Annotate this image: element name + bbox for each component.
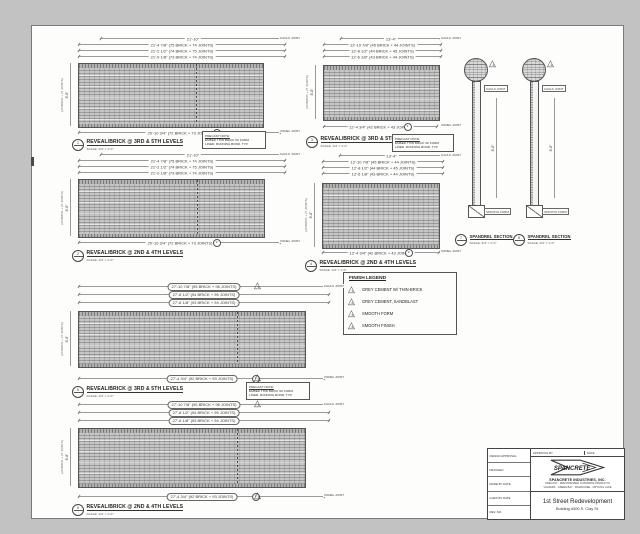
finish-triangle-marker: △1 [254,399,264,408]
company-block: SPANCRETE INDUSTRIES, INC. PRECAST · PRE… [531,478,624,492]
precast-note: PRECAST NOTE: EMBED THIN BRICK W/ FORM L… [392,134,454,152]
panel-joint-line [197,180,198,237]
vertical-dim: 8'-8" (26 BRICK + 27 JOINTS) [314,183,315,247]
detail-bubble [464,58,488,82]
dim-label: 21'-4 7/8" (75 BRICK + 74 JOINTS) [149,158,216,163]
section-label: CAULK JOINT [484,85,508,92]
chevron-logo-icon: SPANCRETE [547,458,609,477]
dim-label: 21'-0 1/8" (73 BRICK + 74 JOINTS) [149,54,216,59]
legend-item: △2 GREY CEMENT, SANDBLAST [348,296,452,308]
dim-line: 27'-6 1/8" (93 BRICK + 94 JOINTS) [78,420,330,421]
reference-bubble: 2 [405,249,413,257]
vertical-dim-label: 8'-8" [65,91,69,98]
section-vertical-dim: 8'-8" [554,98,555,198]
dim-label: 21'-2 1/2" (74 BRICK + 75 JOINTS) [149,48,216,53]
brick-panel [78,311,306,368]
detail-bubble [522,58,546,82]
dim-label: 12'-10 7/8" (45 BRICK + 44 JOINTS) [349,159,418,164]
drawing-scan: 21'-10" 21'-4 7/8" (75 BRICK + 74 JOINTS… [0,0,640,526]
dim-line: 27'-4 3/4" (92 BRICK + 93 JOINTS) 3 [78,378,326,379]
vertical-dim-label: 8'-8" [491,145,495,152]
panel-joint-line [237,312,238,367]
dim-line: 21'-10" [100,38,286,39]
detail-marker: 4 [305,260,317,272]
company-line: PRECAST · PRESTRESSED CONCRETE PRODUCTS [532,482,623,486]
dim-label: 12'-6 1/8" (43 BRICK + 44 JOINTS) [349,54,416,59]
panel-joint-line [196,64,197,127]
dim-line: 27'-10 7/8" (95 BRICK + 96 JOINTS) [78,286,330,287]
vertical-dim: 8'-8" (26 BRICK + 27 JOINTS) [70,63,71,126]
info-row: REV. NO. [488,506,530,519]
section-caption: 8 SPANDREL SECTIONSCALE: 3/4" = 1'-0" [513,234,571,246]
vertical-dim-sub: (26 BRICK + 27 JOINTS) [60,322,64,356]
spandrel-section-2: △1 CAULK JOINT 8'-8" SMOOTH FORM 8 SPAND… [513,58,565,276]
finish-triangle-marker: △1 [254,373,264,382]
dim-line: 21'-2 1/2" (74 BRICK + 75 JOINTS) [78,50,286,51]
svg-text:SPANCRETE: SPANCRETE [553,466,590,472]
vertical-dim-sub: (26 BRICK + 27 JOINTS) [304,198,308,232]
dim-line: 27'-8 1/2" (94 BRICK + 95 JOINTS) [78,412,330,413]
dim-line: 27'-4 3/4" (92 BRICK + 93 JOINTS) 3 [78,496,326,497]
caption-scale: SCALE: 1/4" = 1'-0" [87,512,184,516]
brick-panel [78,63,264,128]
company-line: VALDERS · GREEN BAY · MILWAUKEE · CRYSTA… [532,486,623,490]
caption-text: SPANDREL SECTION [528,234,571,240]
section-label: CAULK JOINT [542,85,566,92]
dim-line: 13'-4" [340,38,442,39]
drawing-sheet: 21'-10" 21'-4 7/8" (75 BRICK + 74 JOINTS… [31,25,624,519]
dim-line: 21'-0 1/8" (73 BRICK + 74 JOINTS) [78,172,286,173]
caption-scale: SCALE: 3/4" = 1'-0" [470,241,513,245]
legend-title: FINISH LEGEND [349,276,452,281]
vertical-dim: 8'-8" (26 BRICK + 27 JOINTS) [70,179,71,236]
dim-label: 20'-10 3/4" (72 BRICK + 73 JOINTS) [146,240,215,245]
dim-line: 12'-10 7/8" (45 BRICK + 44 JOINTS) [323,44,442,45]
detail-marker: 8 [513,234,525,246]
joint-label: CAULK JOINT [323,284,345,288]
dim-line: 12'-10 7/8" (45 BRICK + 44 JOINTS) [322,161,444,162]
dim-label: 27'-10 7/8" (95 BRICK + 96 JOINTS) [168,401,241,409]
info-row: DETAILED [488,463,530,477]
vertical-dim-label: 8'-8" [549,145,553,152]
elevation-caption: 5 REVEAL/BRICK @ 3RD & 5TH LEVELSSCALE: … [72,386,183,398]
elevation-4: 13'-4" 12'-10 7/8" (45 BRICK + 44 JOINTS… [305,152,458,291]
project-block: 1st Street Redevelopment Building #300 S… [531,492,624,520]
note-line: LINER. RUNNING BOND, TYP. [205,142,263,146]
joint-label: PANEL JOINT [323,493,345,497]
finish-triangle-marker: △2 [348,297,358,306]
joint-label: PANEL JOINT [279,239,301,243]
vertical-dim: 8'-8" (26 BRICK + 27 JOINTS) [70,311,71,366]
dim-label: 13'-4" [384,36,398,41]
vertical-dim-label: 8'-8" [65,454,69,461]
finish-triangle-marker: △3 [348,309,358,318]
title-block-info-table: DESIGN APPROVAL DETAILED MADE BY DATE CH… [488,449,531,519]
joint-label: CAULK JOINT [440,36,462,40]
info-row: CHKD BY DATE [488,492,530,506]
elevation-6: 27'-10 7/8" (95 BRICK + 96 JOINTS) 27'-8… [58,398,342,534]
dim-label: 12'-8 1/2" (44 BRICK + 45 JOINTS) [349,48,416,53]
legend-label: GREY CEMENT W/ THIN-BRICK [362,287,423,292]
dim-line: 12'-4 3/4" (42 BRICK + 43 JOINTS) 2 [323,126,438,127]
section-caption: 7 SPANDREL SECTIONSCALE: 3/4" = 1'-0" [455,234,513,246]
date-label: DATE [585,451,624,455]
dim-label: 27'-6 1/8" (93 BRICK + 94 JOINTS) [169,417,240,425]
info-row: MADE BY DATE [488,477,530,491]
dim-line: 12'-6 1/8" (43 BRICK + 44 JOINTS) [323,56,442,57]
dim-line: 21'-4 7/8" (75 BRICK + 74 JOINTS) [78,160,286,161]
dim-label: 12'-8 1/2" (44 BRICK + 45 JOINTS) [350,165,417,170]
project-location: Building #300 S. Clay St. [556,506,599,511]
finish-triangle-marker: △1 [254,491,264,500]
approval-label: APPROVAL BY [531,451,585,455]
detail-marker: 5 [72,386,84,398]
finish-legend: FINISH LEGEND △1 GREY CEMENT W/ THIN-BRI… [343,272,457,335]
elevation-2: 21'-10" 21'-4 7/8" (75 BRICK + 74 JOINTS… [58,150,298,288]
finish-triangle-marker: △1 [547,59,557,68]
dim-line: 12'-6 1/8" (43 BRICK + 44 JOINTS) [322,173,444,174]
vertical-dim-label: 8'-8" [65,204,69,211]
dim-line: 27'-6 1/8" (93 BRICK + 94 JOINTS) [78,302,330,303]
panel-joint-line [237,429,238,487]
sheet-edge-mark [31,157,34,166]
panel-section-column [530,81,539,207]
finish-triangle-marker: △1 [348,285,358,294]
dim-line: 21'-0 1/8" (73 BRICK + 74 JOINTS) [78,56,286,57]
detail-marker: 7 [455,234,467,246]
legend-label: GREY CEMENT, SANDBLAST [362,299,418,304]
dim-label: 27'-4 3/4" (92 BRICK + 93 JOINTS) [167,493,238,501]
dim-label: 27'-8 1/2" (94 BRICK + 95 JOINTS) [169,409,240,417]
title-block: DESIGN APPROVAL DETAILED MADE BY DATE CH… [487,448,625,520]
dim-line: 21'-2 1/2" (74 BRICK + 75 JOINTS) [78,166,286,167]
spancrete-logo: SPANCRETE [531,457,624,478]
legend-item: △3 SMOOTH FORM [348,308,452,320]
panel-section-column [472,81,481,207]
joint-label: PANEL JOINT [323,375,345,379]
dim-label: 21'-4 7/8" (75 BRICK + 74 JOINTS) [149,42,216,47]
detail-marker: 6 [72,504,84,516]
reference-bubble: 2 [213,239,221,247]
legend-label: SMOOTH FINISH [362,323,395,328]
finish-triangle-marker: △1 [254,281,264,290]
dim-line: 21'-10" [100,154,286,155]
dim-line: 20'-10 3/4" (72 BRICK + 73 JOINTS) 2 [78,242,282,243]
brick-panel [322,183,440,249]
caption-text: REVEAL/BRICK @ 2ND & 4TH LEVELS [320,260,417,267]
vertical-dim: 8'-8" (26 BRICK + 27 JOINTS) [70,428,71,486]
section-label: SMOOTH FORM [542,208,569,215]
info-row: DESIGN APPROVAL [488,449,530,463]
elevation-caption: 6 REVEAL/BRICK @ 2ND & 4TH LEVELSSCALE: … [72,504,183,516]
dim-label: 21'-10" [185,36,201,41]
detail-marker: 2 [72,250,84,262]
dim-label: 21'-0 1/8" (73 BRICK + 74 JOINTS) [149,170,216,175]
vertical-dim: 8'-8" (26 BRICK + 27 JOINTS) [315,65,316,119]
dim-label: 27'-6 1/8" (93 BRICK + 94 JOINTS) [169,299,240,307]
caption-scale: SCALE: 3/4" = 1'-0" [528,241,571,245]
dim-label: 12'-10 7/8" (45 BRICK + 44 JOINTS) [348,42,417,47]
dim-label: 12'-6 1/8" (43 BRICK + 44 JOINTS) [350,171,417,176]
joint-label: PANEL JOINT [279,129,301,133]
dim-line: 12'-8 1/2" (44 BRICK + 45 JOINTS) [323,50,442,51]
dim-label: 27'-4 3/4" (92 BRICK + 93 JOINTS) [167,375,238,383]
reference-bubble: 2 [404,123,412,131]
section-label: SMOOTH FORM [484,208,511,215]
dim-label: 21'-10" [185,152,201,157]
dim-line: 12'-4 3/4" (42 BRICK + 43 JOINTS) 2 [322,252,440,253]
dim-label: 21'-2 1/2" (74 BRICK + 75 JOINTS) [149,164,216,169]
legend-item: △4 SMOOTH FINISH [348,320,452,332]
dim-line: 27'-10 7/8" (95 BRICK + 96 JOINTS) [78,404,330,405]
caption-text: REVEAL/BRICK @ 3RD & 5TH LEVELS [87,139,184,146]
dim-label: 13'-4" [384,153,398,158]
spandrel-section-1: △1 CAULK JOINT 8'-8" SMOOTH FORM 7 SPAND… [455,58,507,276]
caption-text: REVEAL/BRICK @ 3RD & 5TH LEVELS [87,386,184,393]
legend-label: SMOOTH FORM [362,311,393,316]
caption-scale: SCALE: 1/4" = 1'-0" [87,258,184,262]
vertical-dim-label: 8'-8" [309,212,313,219]
vertical-dim-sub: (26 BRICK + 27 JOINTS) [305,75,309,109]
dim-label: 27'-8 1/2" (94 BRICK + 95 JOINTS) [169,291,240,299]
elevation-caption: 2 REVEAL/BRICK @ 2ND & 4TH LEVELSSCALE: … [72,250,183,262]
vertical-dim-label: 8'-8" [310,89,314,96]
brick-panel [323,65,440,121]
dim-line: 12'-8 1/2" (44 BRICK + 45 JOINTS) [322,167,444,168]
joint-label: CAULK JOINT [279,152,301,156]
legend-item: △1 GREY CEMENT W/ THIN-BRICK [348,284,452,296]
caption-text: SPANDREL SECTION [470,234,513,240]
vertical-dim-sub: (26 BRICK + 27 JOINTS) [60,78,64,112]
caption-text: REVEAL/BRICK @ 2ND & 4TH LEVELS [87,250,184,257]
joint-label: CAULK JOINT [323,402,345,406]
precast-note: PRECAST NOTE: EMBED THIN BRICK W/ FORM L… [202,131,266,149]
section-base-detail [468,205,485,218]
dim-line: 21'-4 7/8" (75 BRICK + 74 JOINTS) [78,44,286,45]
vertical-dim-sub: (26 BRICK + 27 JOINTS) [60,191,64,225]
section-vertical-dim: 8'-8" [496,98,497,198]
detail-marker: 3 [306,136,318,148]
brick-panel [78,179,265,238]
note-line: LINER. RUNNING BOND, TYP. [395,145,451,149]
brick-panel [78,428,306,488]
vertical-dim-sub: (26 BRICK + 27 JOINTS) [60,440,64,474]
joint-label: CAULK JOINT [279,36,301,40]
dim-line: 13'-4" [339,155,444,156]
approval-row: APPROVAL BY DATE [531,449,624,457]
project-name: 1st Street Redevelopment [543,499,612,505]
finish-triangle-marker: △1 [489,59,499,68]
dim-label: 27'-10 7/8" (95 BRICK + 96 JOINTS) [168,283,241,291]
title-block-main: APPROVAL BY DATE SPANCRETE SPANCRETE IND… [531,449,624,519]
section-base-detail [526,205,543,218]
caption-text: REVEAL/BRICK @ 2ND & 4TH LEVELS [87,504,184,511]
finish-triangle-marker: △4 [348,321,358,330]
vertical-dim-label: 8'-8" [65,335,69,342]
elevation-caption: 4 REVEAL/BRICK @ 2ND & 4TH LEVELSSCALE: … [305,260,416,272]
dim-line: 27'-8 1/2" (94 BRICK + 95 JOINTS) [78,294,330,295]
